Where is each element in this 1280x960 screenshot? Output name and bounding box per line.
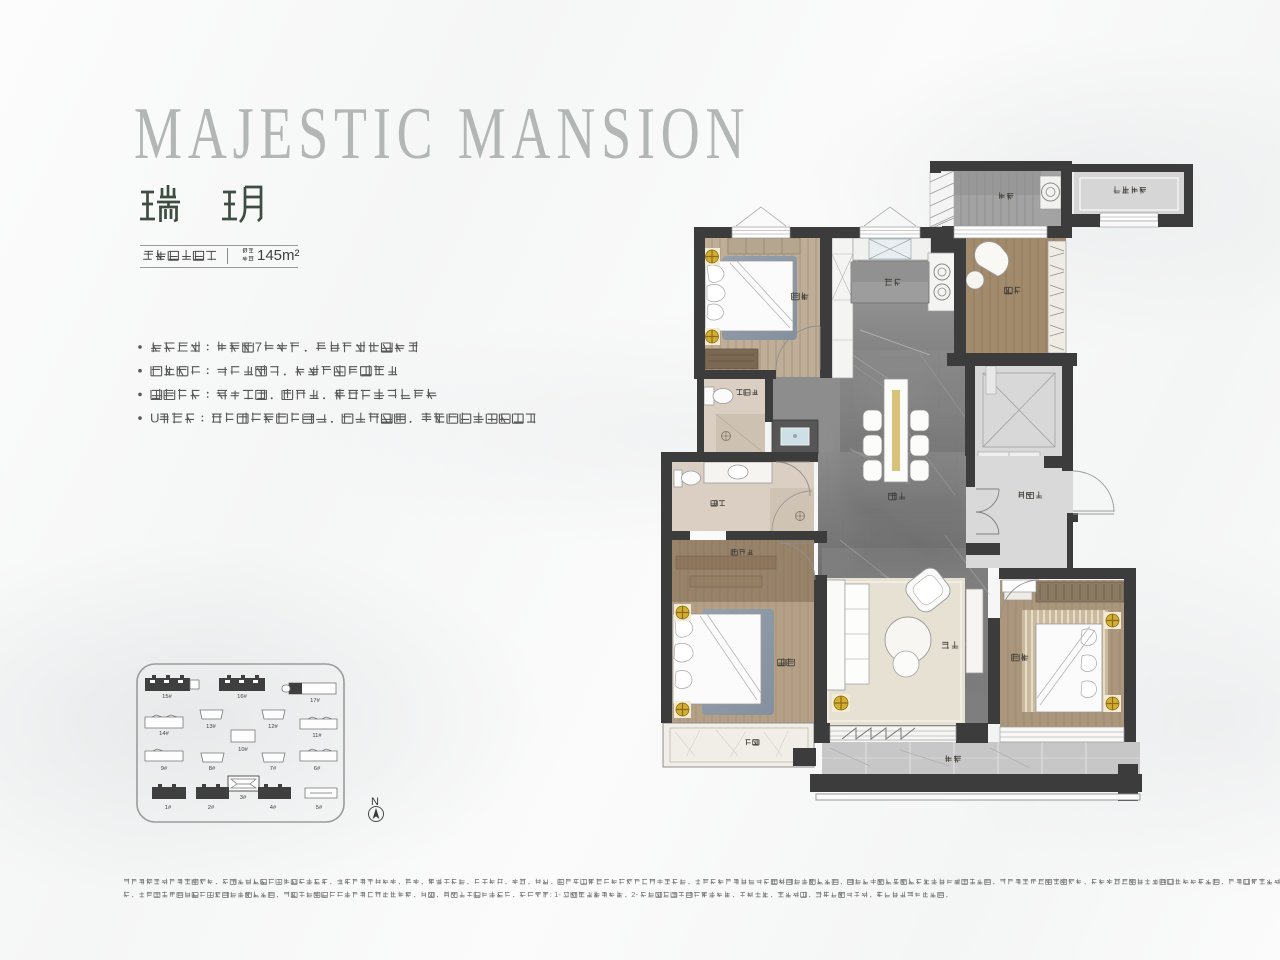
svg-text:-: - — [558, 890, 561, 899]
svg-text:9#: 9# — [161, 766, 168, 772]
svg-text::: : — [550, 890, 552, 899]
svg-text:6#: 6# — [314, 766, 321, 772]
svg-text:2#: 2# — [208, 805, 215, 811]
svg-text:7#: 7# — [270, 766, 277, 772]
svg-text:15#: 15# — [162, 694, 172, 700]
svg-text:16#: 16# — [237, 694, 247, 700]
svg-text:3#: 3# — [240, 795, 247, 801]
svg-text:4#: 4# — [270, 805, 277, 811]
svg-text:1#: 1# — [165, 805, 172, 811]
svg-text:7: 7 — [255, 339, 262, 354]
svg-text:12#: 12# — [268, 724, 278, 730]
svg-text:-: - — [636, 890, 639, 899]
svg-text:10#: 10# — [238, 747, 248, 753]
svg-text:11#: 11# — [312, 733, 322, 739]
svg-text:17#: 17# — [310, 698, 320, 704]
svg-text:5#: 5# — [316, 805, 323, 811]
svg-text:14#: 14# — [159, 731, 169, 737]
svg-text:13#: 13# — [206, 724, 216, 730]
svg-text:8#: 8# — [209, 766, 216, 772]
svg-text:U: U — [150, 410, 160, 425]
